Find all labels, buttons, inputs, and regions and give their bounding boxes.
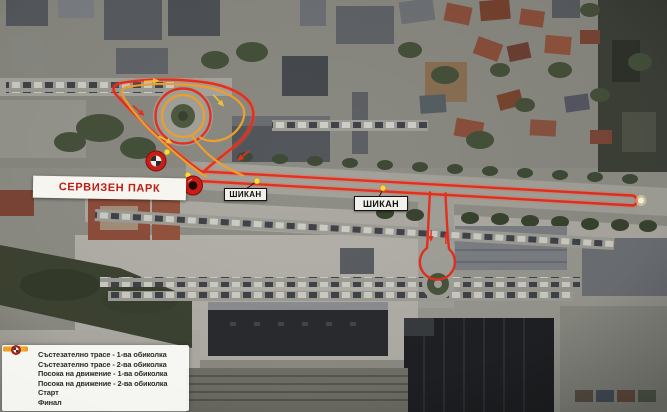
legend-item-label: Посока на движение - 1-ва обиколка (38, 369, 167, 378)
legend-item-finish: Финал (7, 398, 185, 407)
legend-item-label: Състезателно трасе - 2-ва обиколка (38, 360, 167, 369)
legend-item-start: Старт (7, 388, 185, 397)
legend-item-direction-lap2: Посока на движение - 2-ва обиколка (7, 379, 185, 388)
legend-item-label: Старт (38, 388, 59, 397)
legend-item-direction-lap1: Посока на движение - 1-ва обиколка (7, 369, 185, 378)
service-park-label: СЕРВИЗЕН ПАРК (33, 176, 186, 201)
race-track-map: СЕРВИЗЕН ПАРК ШИКАН ШИКАН Състезателно т… (0, 0, 667, 412)
chicane-label-1: ШИКАН (224, 188, 267, 201)
legend-item-label: Посока на движение - 2-ва обиколка (38, 379, 167, 388)
legend-item-track-lap2: Състезателно трасе - 2-ва обиколка (7, 360, 185, 369)
chicane-label-2: ШИКАН (354, 196, 408, 211)
legend-panel: Състезателно трасе - 1-ва обиколка Състе… (2, 345, 189, 411)
legend-item-label: Състезателно трасе - 1-ва обиколка (38, 350, 167, 359)
legend-item-label: Финал (38, 398, 62, 407)
legend-item-track-lap1: Състезателно трасе - 1-ва обиколка (7, 350, 185, 359)
